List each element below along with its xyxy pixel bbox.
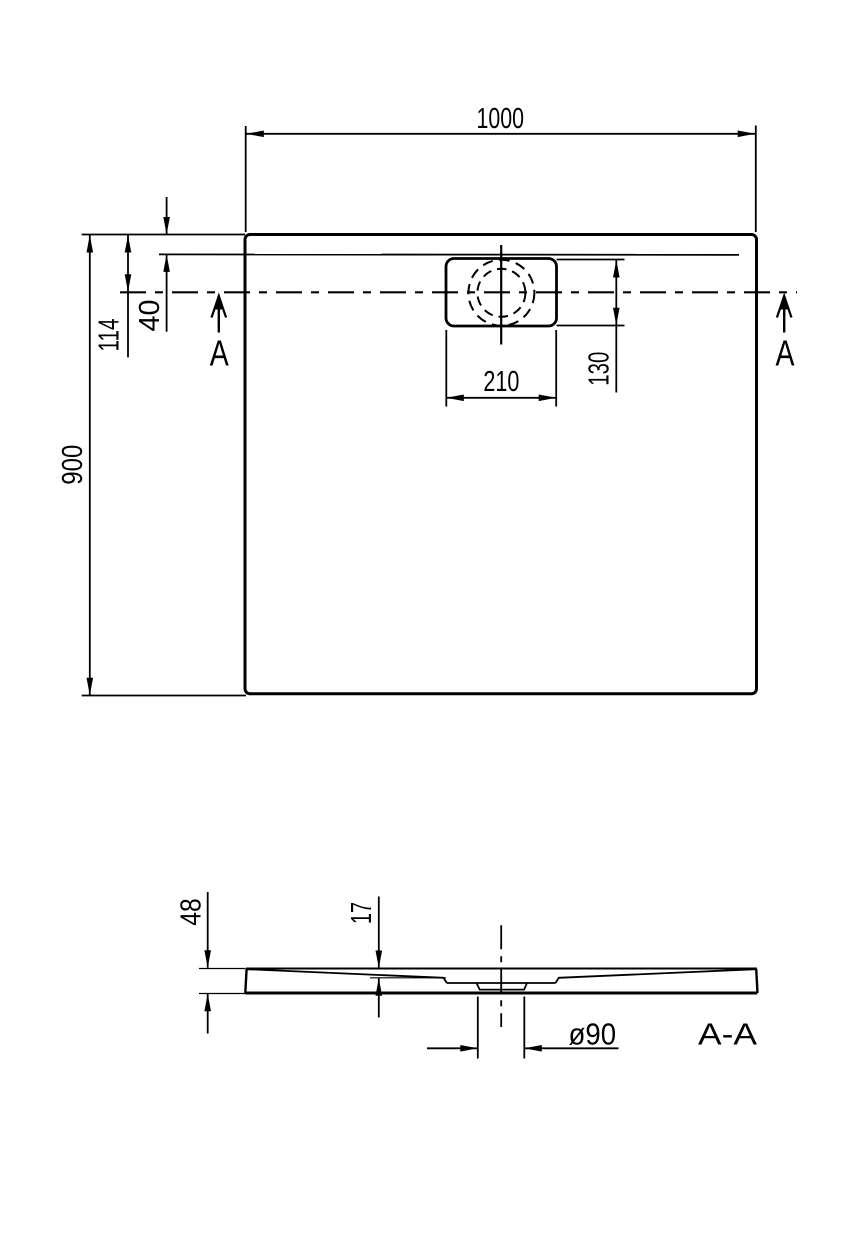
svg-text:A: A — [210, 333, 229, 374]
svg-text:A-A: A-A — [698, 1017, 757, 1052]
svg-text:210: 210 — [483, 366, 519, 398]
svg-text:A: A — [776, 333, 795, 374]
svg-text:114: 114 — [94, 319, 126, 352]
svg-text:ø90: ø90 — [569, 1017, 617, 1052]
svg-text:48: 48 — [176, 898, 208, 926]
svg-text:40: 40 — [134, 300, 166, 332]
svg-text:1000: 1000 — [476, 103, 524, 135]
svg-text:900: 900 — [57, 445, 89, 485]
svg-text:17: 17 — [346, 902, 378, 924]
svg-text:130: 130 — [584, 352, 616, 386]
